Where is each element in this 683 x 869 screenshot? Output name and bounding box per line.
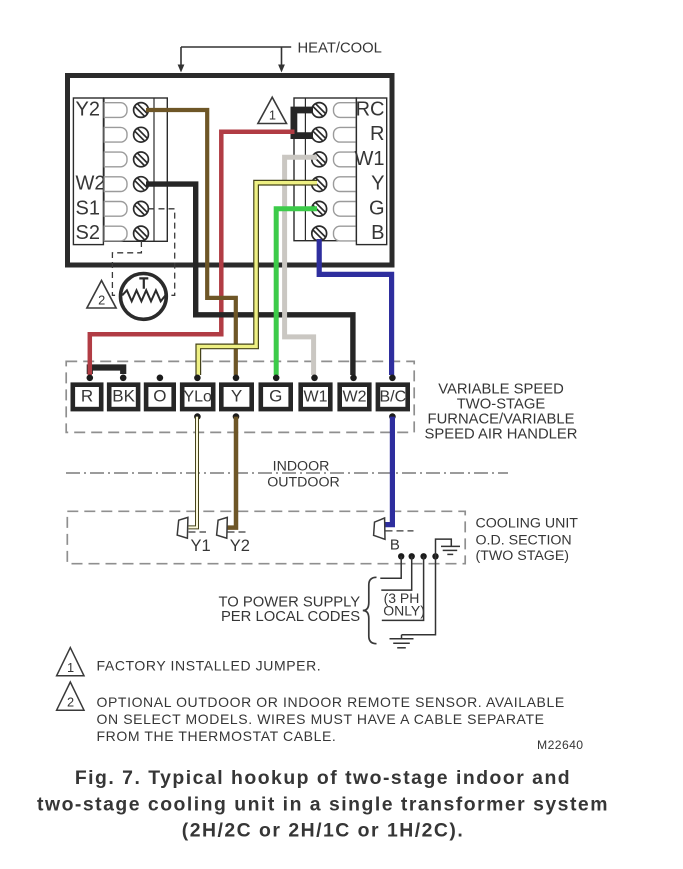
svg-text:BK: BK: [112, 387, 135, 406]
svg-text:O.D. SECTION: O.D. SECTION: [476, 532, 572, 548]
svg-text:Y1: Y1: [191, 537, 211, 555]
svg-text:TO POWER SUPPLY: TO POWER SUPPLY: [218, 595, 360, 611]
svg-text:2: 2: [67, 694, 74, 709]
svg-text:two-stage cooling unit in a si: two-stage cooling unit in a single trans…: [37, 793, 609, 815]
svg-text:Fig. 7. Typical hookup of two-: Fig. 7. Typical hookup of two-stage indo…: [75, 767, 571, 789]
svg-text:G: G: [369, 197, 385, 219]
svg-text:Y2: Y2: [230, 537, 250, 555]
svg-text:B/C: B/C: [379, 389, 406, 406]
svg-text:OUTDOOR: OUTDOOR: [267, 475, 340, 491]
svg-text:R: R: [370, 123, 384, 145]
svg-text:Y: Y: [371, 173, 384, 195]
svg-text:B: B: [371, 222, 384, 244]
svg-text:TWO-STAGE: TWO-STAGE: [457, 397, 546, 413]
svg-text:(TWO STAGE): (TWO STAGE): [476, 548, 570, 564]
svg-text:(2H/2C or 2H/1C or 1H/2C).: (2H/2C or 2H/1C or 1H/2C).: [182, 820, 465, 842]
svg-text:SPEED AIR HANDLER: SPEED AIR HANDLER: [425, 427, 578, 443]
svg-text:FURNACE/VARIABLE: FURNACE/VARIABLE: [428, 412, 575, 428]
svg-text:W1: W1: [304, 389, 328, 406]
svg-text:W1: W1: [355, 148, 385, 170]
svg-text:HEAT/COOL: HEAT/COOL: [298, 41, 382, 57]
svg-text:FACTORY INSTALLED JUMPER.: FACTORY INSTALLED JUMPER.: [97, 658, 322, 674]
svg-text:S1: S1: [76, 197, 100, 219]
svg-text:COOLING UNIT: COOLING UNIT: [476, 516, 579, 532]
svg-text:W2: W2: [76, 173, 106, 195]
svg-text:M22640: M22640: [537, 738, 583, 752]
svg-text:YLo: YLo: [183, 389, 212, 406]
svg-text:S2: S2: [76, 222, 100, 244]
svg-text:Y: Y: [231, 387, 242, 406]
svg-text:W2: W2: [343, 389, 367, 406]
svg-text:INDOOR: INDOOR: [273, 458, 330, 474]
svg-text:B: B: [390, 536, 400, 553]
svg-text:1: 1: [67, 660, 74, 675]
svg-text:RC: RC: [356, 99, 385, 121]
svg-text:VARIABLE SPEED: VARIABLE SPEED: [438, 382, 564, 398]
svg-text:O: O: [153, 387, 166, 406]
svg-text:PER LOCAL CODES: PER LOCAL CODES: [221, 609, 360, 625]
svg-text:R: R: [81, 387, 93, 406]
svg-text:2: 2: [98, 293, 105, 308]
svg-text:OPTIONAL OUTDOOR OR INDOOR REM: OPTIONAL OUTDOOR OR INDOOR REMOTE SENSOR…: [97, 694, 565, 710]
svg-text:ON SELECT MODELS. WIRES MUST: ON SELECT MODELS. WIRES MUST HAVE A CABL…: [97, 711, 545, 727]
svg-text:Y2: Y2: [76, 99, 100, 121]
svg-text:ONLY): ONLY): [383, 603, 425, 619]
svg-text:FROM THE THERMOSTAT CABLE.: FROM THE THERMOSTAT CABLE.: [97, 728, 337, 744]
svg-text:G: G: [269, 387, 282, 406]
svg-text:1: 1: [269, 108, 276, 123]
